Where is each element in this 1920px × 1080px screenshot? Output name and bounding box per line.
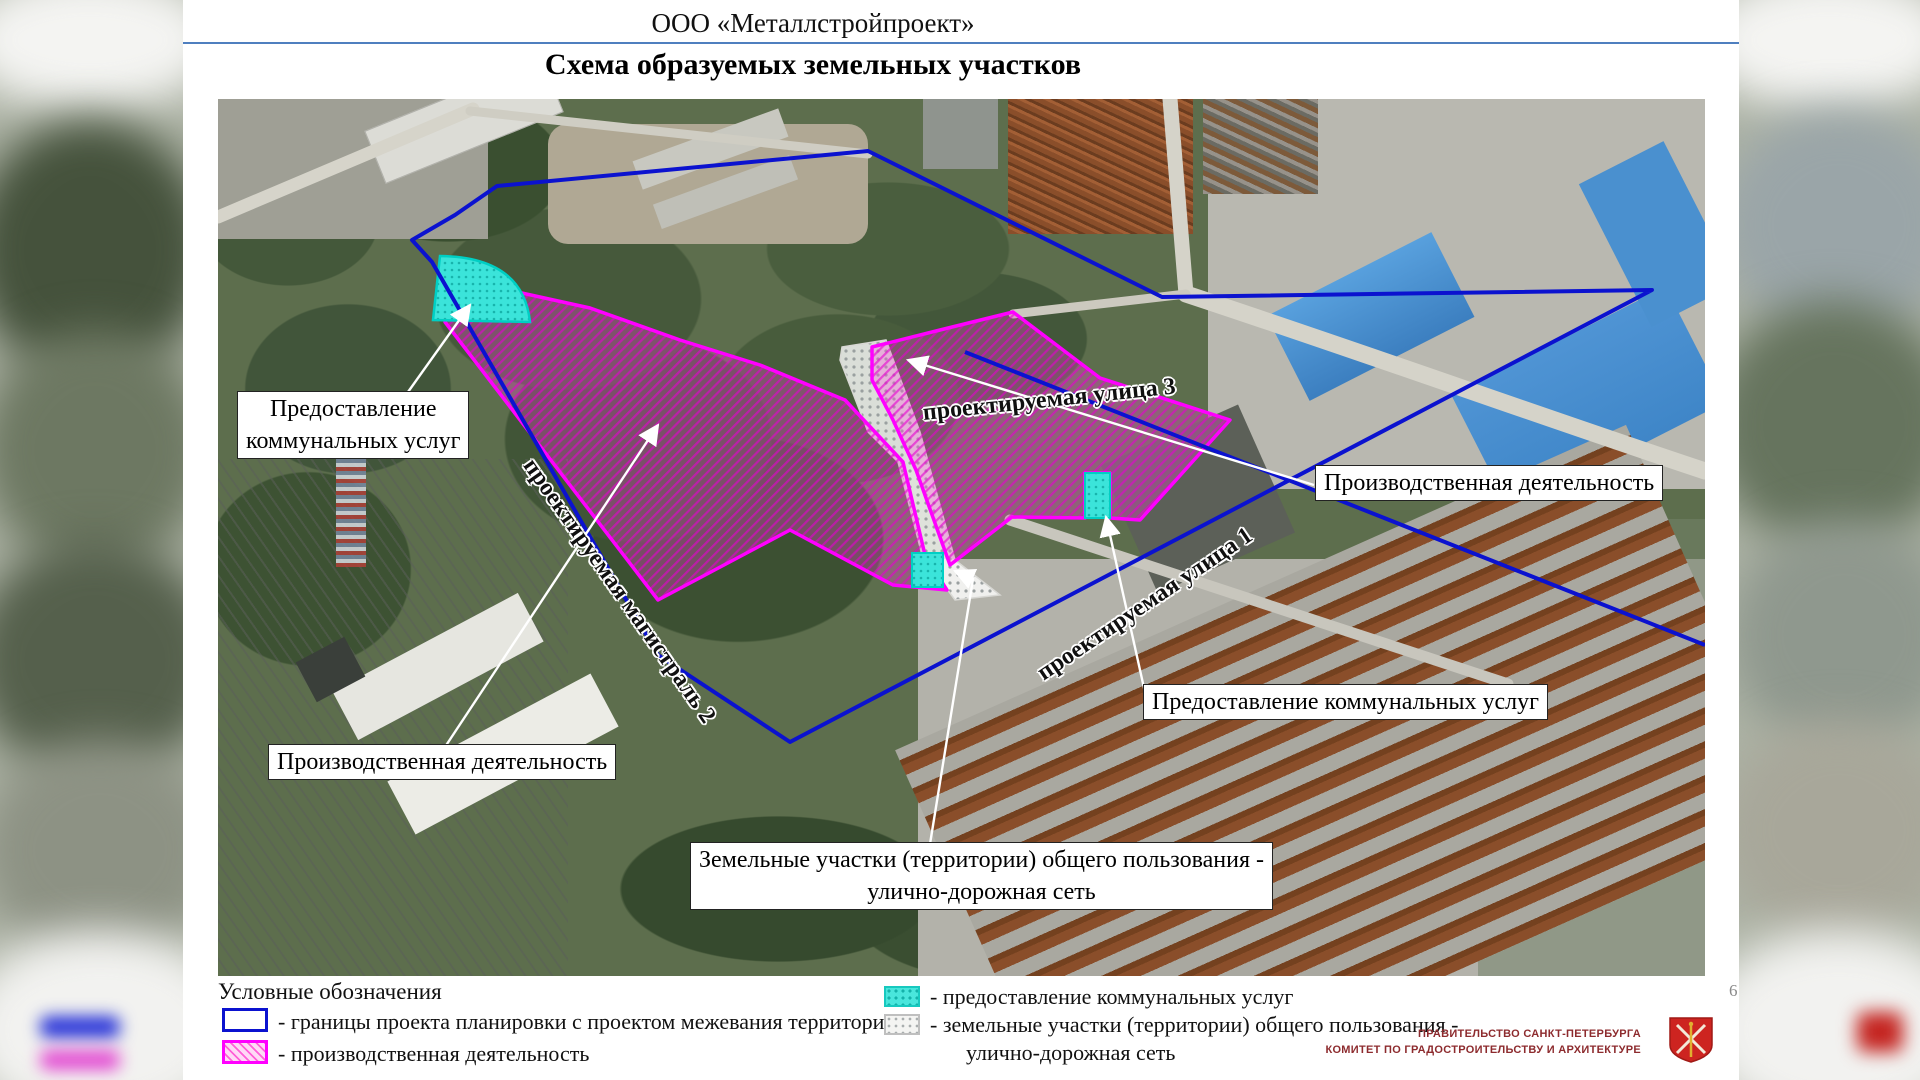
legend-title: Условные обозначения	[218, 979, 442, 1005]
legend-label-common-use: - земельные участки (территории) общего …	[930, 1012, 1458, 1038]
gov-line-2: КОМИТЕТ ПО ГРАДОСТРОИТЕЛЬСТВУ И АРХИТЕКТ…	[1325, 1044, 1641, 1056]
parcel-communal-small-1	[912, 553, 943, 587]
legend-swatch-common-use	[884, 1014, 920, 1035]
presentation-page: ООО «Металлстройпроект» Схема образуемых…	[0, 0, 1920, 1080]
blurred-left-margin	[0, 0, 183, 1080]
callout-common-use-territories: Земельные участки (территории) общего по…	[690, 842, 1273, 910]
title-divider-line	[183, 42, 1739, 44]
blur-blob	[1739, 930, 1920, 1080]
blurred-right-margin	[1739, 0, 1920, 1080]
callout-line: Земельные участки (территории) общего по…	[699, 844, 1264, 876]
legend-swatch-boundary	[222, 1008, 268, 1032]
blur-blob	[0, 0, 183, 110]
blurred-emblem	[1857, 1012, 1903, 1052]
legend-label-production: - производственная деятельность	[278, 1041, 589, 1067]
slide: ООО «Металлстройпроект» Схема образуемых…	[183, 0, 1739, 1080]
callout-line: Предоставление	[246, 393, 460, 425]
callout-line: улично-дорожная сеть	[699, 876, 1264, 908]
spb-coat-of-arms	[1668, 1016, 1714, 1064]
blurred-legend-swatch-blue	[40, 1016, 120, 1038]
blur-blob	[0, 740, 183, 960]
callout-production-activity-sw: Производственная деятельность	[268, 744, 616, 780]
blurred-legend-swatch-magenta	[40, 1050, 120, 1070]
legend-swatch-communal	[884, 986, 920, 1007]
parcel-communal-small-2	[1085, 473, 1110, 518]
parcel-production-left	[445, 290, 947, 600]
aerial-map: проектируемая магистраль 2 проектируемая…	[218, 99, 1705, 976]
callout-production-activity-e: Производственная деятельность	[1315, 465, 1663, 501]
gov-line-1: ПРАВИТЕЛЬСТВО САНКТ-ПЕТЕРБУРГА	[1418, 1028, 1641, 1040]
blur-blob	[1739, 720, 1920, 940]
callout-line: коммунальных услуг	[246, 425, 460, 457]
blur-blob	[1739, 0, 1920, 110]
callout-communal-services-nw: Предоставление коммунальных услуг	[237, 391, 469, 459]
page-number: 6	[1729, 981, 1738, 1001]
legend-label-common-use-line2: улично-дорожная сеть	[966, 1040, 1175, 1066]
legend-label-boundary: - границы проекта планировки с проектом …	[278, 1009, 896, 1035]
page-title: Схема образуемых земельных участков	[183, 48, 1443, 82]
blur-blob	[1739, 300, 1920, 550]
legend-label-communal: - предоставление коммунальных услуг	[930, 984, 1293, 1010]
callout-communal-services-se: Предоставление коммунальных услуг	[1143, 684, 1548, 720]
organization-title: ООО «Металлстройпроект»	[183, 8, 1443, 39]
legend-swatch-production	[222, 1040, 268, 1064]
blur-blob	[0, 330, 183, 570]
blur-blob	[1739, 520, 1920, 750]
